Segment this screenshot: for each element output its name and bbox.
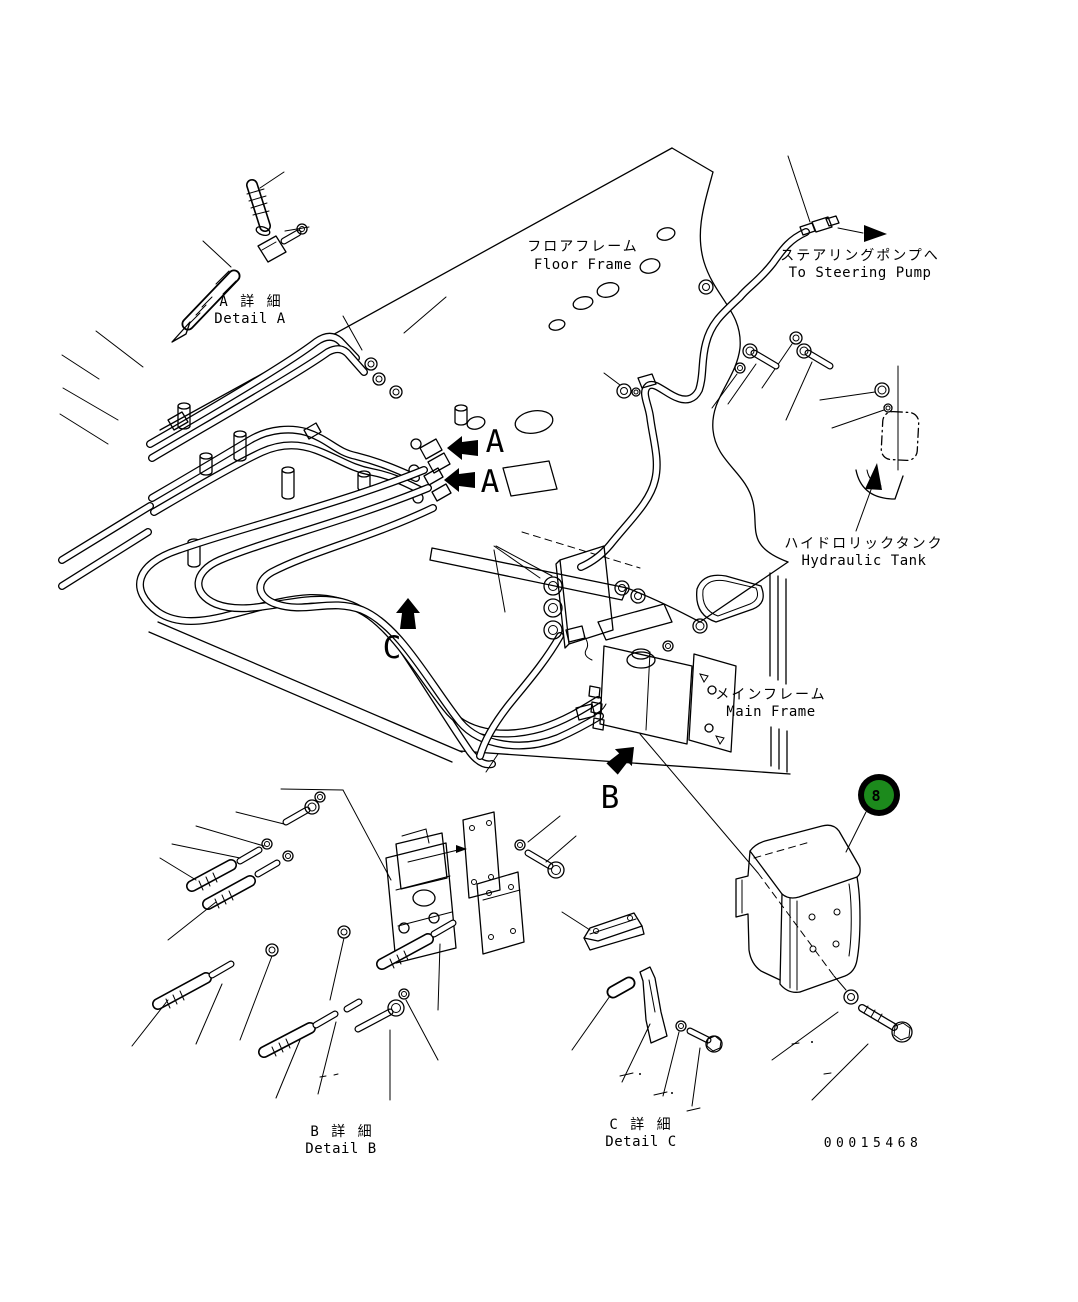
steering-pump-label-en: To Steering Pump bbox=[789, 265, 932, 281]
section-marker-a-lower: A bbox=[481, 464, 500, 500]
detail-c-parts bbox=[562, 912, 831, 1111]
detail-a-label-jp: A 詳 細 bbox=[219, 294, 282, 310]
part-callout-8[interactable]: 8 bbox=[846, 774, 900, 852]
detail-b-parts bbox=[132, 789, 576, 1100]
detail-c-label-jp: C 詳 細 bbox=[609, 1117, 672, 1133]
hydraulic-tank-arrow bbox=[865, 463, 882, 490]
steering-pump-label-jp: ステアリングポンプへ bbox=[780, 248, 940, 264]
drawing-number: 00015468 bbox=[824, 1136, 923, 1151]
fastener-cluster-right bbox=[712, 332, 892, 428]
detail-b-label-en: Detail B bbox=[305, 1141, 376, 1157]
main-frame-label-en: Main Frame bbox=[726, 704, 815, 720]
hydraulic-tank-label-en: Hydraulic Tank bbox=[801, 553, 926, 569]
steering-pump-hose bbox=[581, 156, 887, 567]
hydraulic-tank-label-jp: ハイドロリックタンク bbox=[784, 536, 943, 552]
valve-assembly bbox=[566, 604, 736, 752]
hydraulic-tank bbox=[856, 366, 919, 531]
section-a-arrow-upper bbox=[447, 436, 478, 460]
section-c-arrow bbox=[396, 598, 420, 629]
main-frame-label-jp: メインフレーム bbox=[715, 687, 826, 703]
parts-diagram-page: 8 bbox=[0, 0, 1078, 1302]
section-marker-c: C bbox=[383, 630, 402, 666]
section-arrows bbox=[396, 436, 642, 777]
floor-frame-label-jp: フロアフレーム bbox=[527, 239, 639, 255]
callout-number: 8 bbox=[871, 787, 880, 805]
section-marker-b: B bbox=[601, 780, 620, 816]
detail-a-label-en: Detail A bbox=[214, 311, 286, 327]
section-b-arrow bbox=[604, 739, 643, 778]
line-art-canvas: 8 bbox=[0, 0, 1078, 1302]
detail-c-label-en: Detail C bbox=[605, 1134, 676, 1150]
floor-frame-label-en: Floor Frame bbox=[534, 257, 632, 273]
section-marker-a-upper: A bbox=[486, 424, 505, 460]
main-frame bbox=[149, 573, 790, 774]
detail-b-label-jp: B 詳 細 bbox=[310, 1124, 373, 1140]
steering-direction-arrow bbox=[864, 225, 887, 242]
